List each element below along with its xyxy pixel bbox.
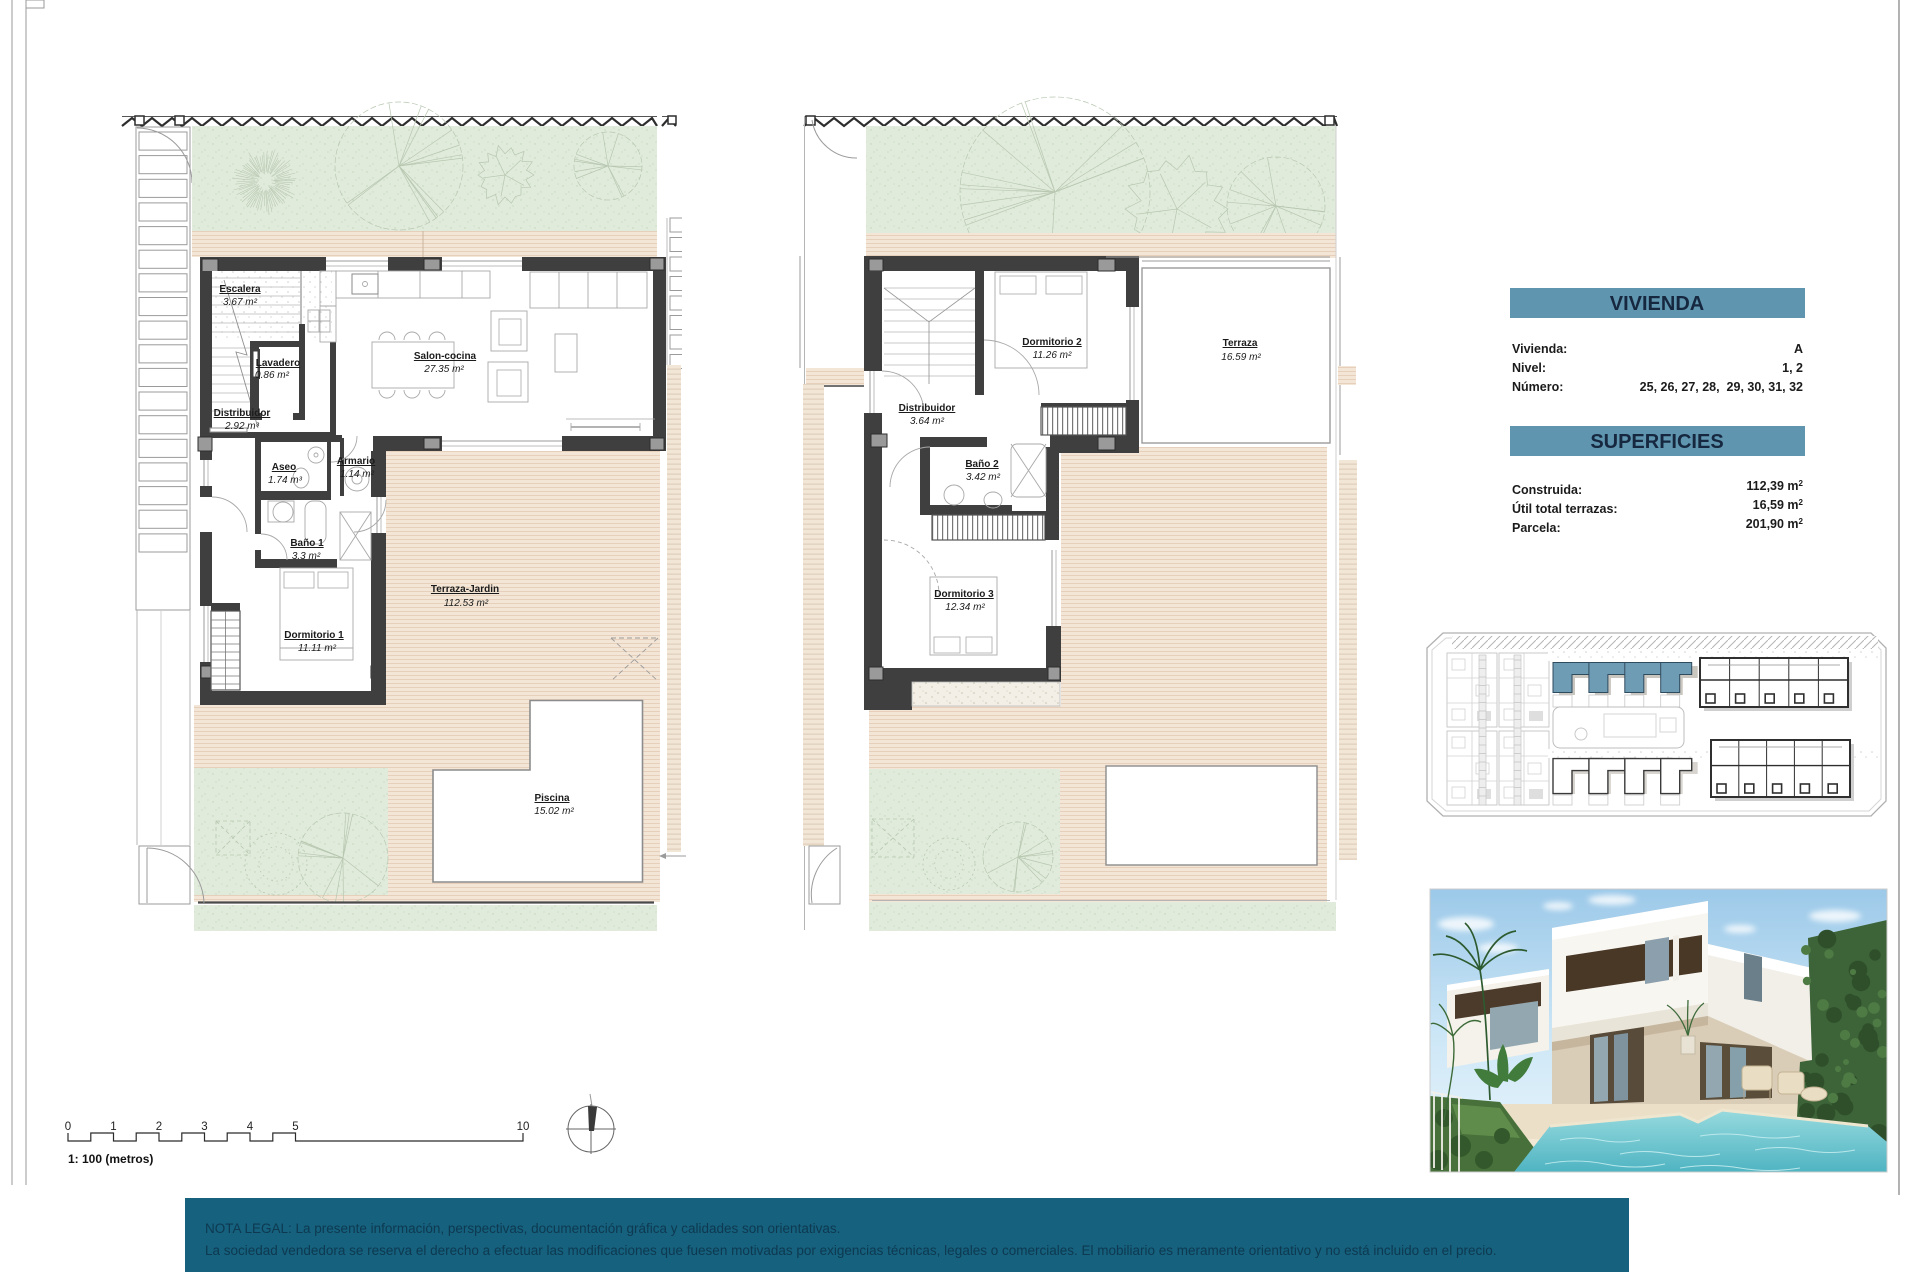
svg-text:15.02 m²: 15.02 m² [534, 806, 574, 817]
svg-text:1: 100 (metros): 1: 100 (metros) [68, 1152, 153, 1166]
svg-text:Armario: Armario [337, 456, 375, 467]
svg-text:11.11 m²: 11.11 m² [298, 643, 337, 654]
svg-text:2: 2 [156, 1121, 162, 1133]
svg-text:0.86 m²: 0.86 m² [255, 370, 290, 381]
svg-text:NOTA LEGAL: La presente inform: NOTA LEGAL: La presente información, per… [205, 1221, 840, 1236]
svg-text:3.3 m²: 3.3 m² [292, 551, 321, 562]
svg-text:Dormitorio 3: Dormitorio 3 [934, 589, 994, 600]
svg-text:16.59 m²: 16.59 m² [1221, 352, 1261, 363]
svg-text:3: 3 [201, 1121, 207, 1133]
svg-text:Escalera: Escalera [219, 284, 261, 295]
svg-text:Parcela:: Parcela: [1512, 521, 1561, 535]
svg-text:Aseo: Aseo [272, 462, 296, 473]
svg-text:12.34 m²: 12.34 m² [945, 602, 985, 613]
svg-text:Dormitorio 2: Dormitorio 2 [1022, 337, 1082, 348]
svg-text:Construida:: Construida: [1512, 483, 1582, 497]
svg-text:1, 2: 1, 2 [1782, 361, 1803, 375]
svg-text:16,59 m2: 16,59 m2 [1753, 498, 1804, 512]
svg-text:Nivel:: Nivel: [1512, 361, 1546, 375]
svg-text:Vivienda:: Vivienda: [1512, 342, 1567, 356]
svg-text:1.74 m³: 1.74 m³ [268, 475, 303, 486]
svg-text:112.53 m²: 112.53 m² [444, 598, 489, 609]
svg-text:4: 4 [247, 1121, 254, 1133]
svg-text:1: 1 [110, 1121, 116, 1133]
svg-text:Útil total terrazas:: Útil total terrazas: [1512, 501, 1618, 516]
svg-text:Salon-cocina: Salon-cocina [414, 351, 477, 362]
svg-text:201,90 m2: 201,90 m2 [1746, 517, 1804, 531]
svg-text:3.64 m²: 3.64 m² [910, 416, 945, 427]
svg-text:Baño 1: Baño 1 [290, 538, 324, 549]
svg-text:La sociedad vendedora se reser: La sociedad vendedora se reserva el dere… [205, 1243, 1496, 1258]
svg-text:10: 10 [517, 1121, 530, 1133]
svg-text:25, 26, 27, 28, 29, 30, 31, 3: 25, 26, 27, 28, 29, 30, 31, 32 [1640, 380, 1803, 394]
svg-text:1.14 m²: 1.14 m² [340, 469, 375, 480]
svg-text:112,39 m2: 112,39 m2 [1746, 479, 1803, 493]
svg-text:Número:: Número: [1512, 380, 1563, 394]
svg-text:Distribuidor: Distribuidor [214, 408, 271, 419]
svg-text:11.26 m²: 11.26 m² [1033, 350, 1072, 361]
svg-text:VIVIENDA: VIVIENDA [1610, 293, 1704, 315]
svg-text:3.42 m²: 3.42 m² [966, 472, 1001, 483]
svg-text:Terraza-Jardin: Terraza-Jardin [431, 584, 499, 595]
svg-text:27.35 m²: 27.35 m² [423, 364, 464, 375]
svg-text:Baño 2: Baño 2 [965, 459, 999, 470]
svg-text:0: 0 [65, 1121, 71, 1133]
svg-text:5: 5 [292, 1121, 298, 1133]
svg-text:Terraza: Terraza [1223, 338, 1258, 349]
svg-text:3.67 m²: 3.67 m² [223, 297, 258, 308]
svg-text:2.92 m³: 2.92 m³ [224, 421, 260, 432]
svg-text:Piscina: Piscina [534, 793, 569, 804]
svg-text:Distribuidor: Distribuidor [899, 403, 956, 414]
svg-text:Dormitorio 1: Dormitorio 1 [284, 630, 344, 641]
svg-text:Lavadero: Lavadero [256, 358, 300, 369]
svg-text:A: A [1794, 342, 1803, 356]
svg-text:SUPERFICIES: SUPERFICIES [1590, 431, 1723, 453]
